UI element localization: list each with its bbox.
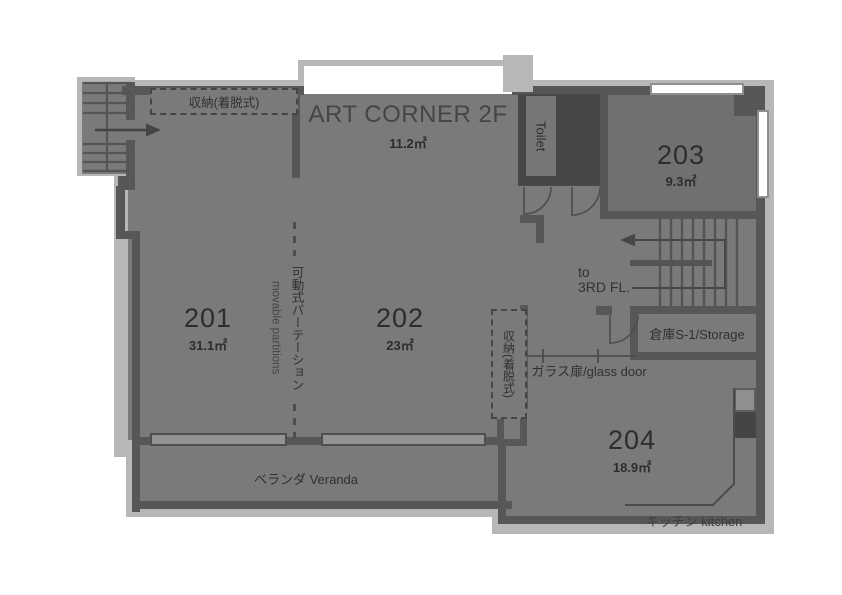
art-corner-title: ART CORNER 2F xyxy=(308,101,508,129)
partition-label-en-text: movable partitions xyxy=(270,281,282,374)
floor-stairs-left xyxy=(82,82,132,174)
stairs-note-floor: 3RD FL. xyxy=(578,280,640,295)
partition-label-jp-text: 可動式パーテーション xyxy=(288,266,307,391)
art-corner-area: 11.2㎡ xyxy=(348,133,468,151)
storage-label: 倉庫S-1/Storage xyxy=(649,324,744,343)
closet-top-label: 収納(着脱式) xyxy=(189,92,260,111)
veranda-label: ベランダ Veranda xyxy=(246,470,366,486)
kitchen-counter xyxy=(734,388,756,412)
room-202-area: 23㎡ xyxy=(350,336,450,352)
toilet-room: Toilet xyxy=(526,96,556,176)
closet-side-label: 収納(着脱式) xyxy=(501,330,518,398)
wall-203-notch xyxy=(734,95,756,116)
floor-plan: 倉庫S-1/Storage Toilet 収納(着脱式) 収納(着脱式) 可動式… xyxy=(0,0,842,595)
wall-stairs-hall xyxy=(596,306,612,315)
room-203-area: 9.3㎡ xyxy=(631,172,731,188)
window-203-top xyxy=(650,83,744,95)
outline-corner-block xyxy=(503,55,533,92)
glass-door-label: ガラス扉/glass door xyxy=(524,362,654,378)
wall-stair-right-upper xyxy=(126,82,135,120)
wall-veranda-bottom xyxy=(132,501,512,509)
window-veranda-2 xyxy=(321,433,486,446)
toilet-label: Toilet xyxy=(534,121,549,151)
partition-label-jp: 可動式パーテーション xyxy=(287,256,307,401)
kitchen-sink xyxy=(734,412,756,438)
room-201-number: 201 xyxy=(158,303,258,333)
art-corner-title-text: ART CORNER 2F xyxy=(309,101,508,129)
closet-top: 収納(着脱式) xyxy=(150,88,298,115)
window-203-right xyxy=(757,110,769,198)
wall-203-bottom xyxy=(600,211,764,219)
window-veranda-1 xyxy=(150,433,287,446)
wall-204-left xyxy=(498,440,506,524)
wall-stair-right-lower xyxy=(126,140,135,178)
wall-stub-b xyxy=(536,215,544,243)
wall-stair-foot xyxy=(118,176,135,190)
wall-left-lower xyxy=(132,231,140,445)
room-202-number: 202 xyxy=(350,303,450,333)
room-201-area: 31.1㎡ xyxy=(158,336,258,352)
room-204-area: 18.9㎡ xyxy=(582,458,682,474)
stairs-note: to 3RD FL. xyxy=(578,265,640,294)
partition-label-en: movable partitions xyxy=(267,258,284,398)
closet-side: 収納(着脱式) xyxy=(491,309,527,419)
room-204-number: 204 xyxy=(582,425,682,455)
room-203-number: 203 xyxy=(631,140,731,170)
wall-203-left xyxy=(600,94,608,218)
room-storage: 倉庫S-1/Storage xyxy=(630,306,764,360)
stairs-note-to: to xyxy=(578,265,640,280)
kitchen-label: キッチン kitchen xyxy=(638,512,750,528)
